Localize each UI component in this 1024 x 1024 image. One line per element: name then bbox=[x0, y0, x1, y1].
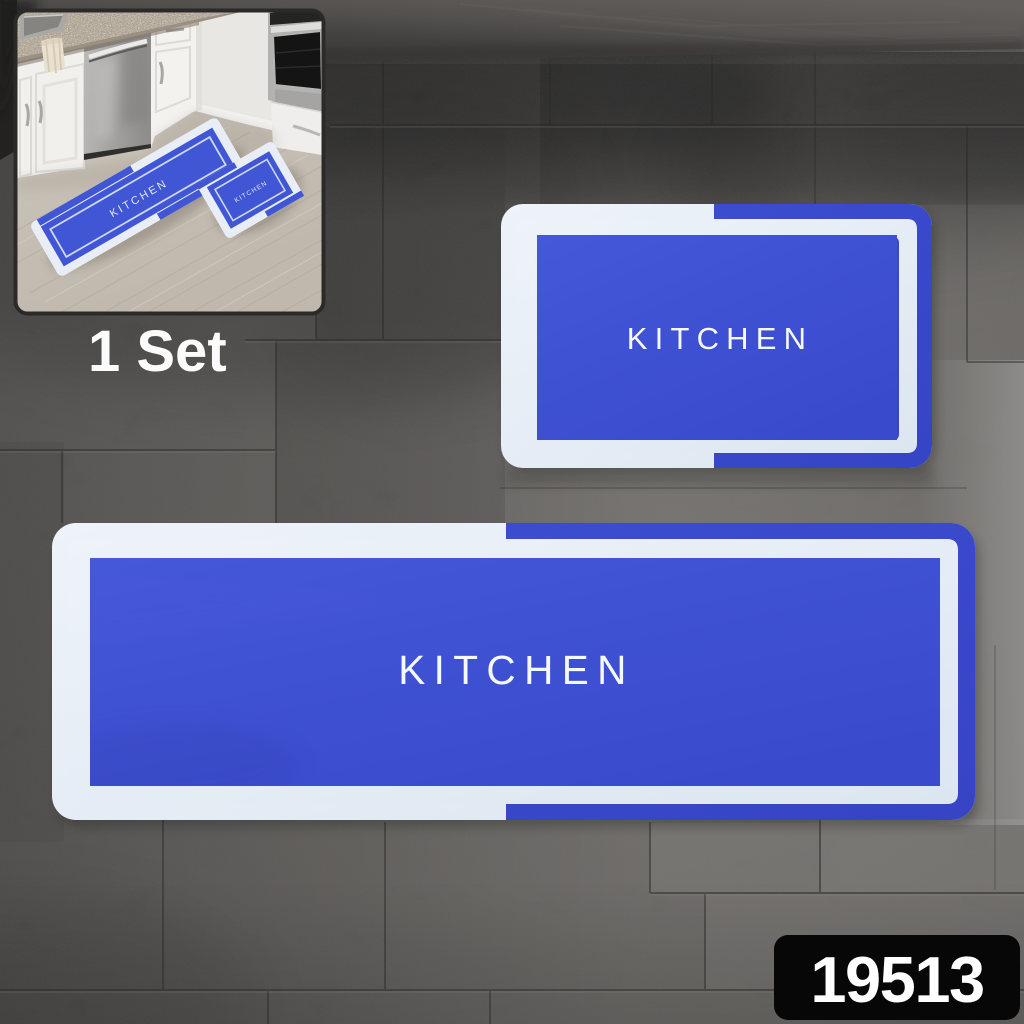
svg-text:KITCHEN: KITCHEN bbox=[398, 647, 635, 693]
svg-text:KITCHEN: KITCHEN bbox=[627, 321, 813, 356]
svg-text:1 Set: 1 Set bbox=[88, 319, 227, 384]
svg-text:19513: 19513 bbox=[810, 943, 983, 1016]
